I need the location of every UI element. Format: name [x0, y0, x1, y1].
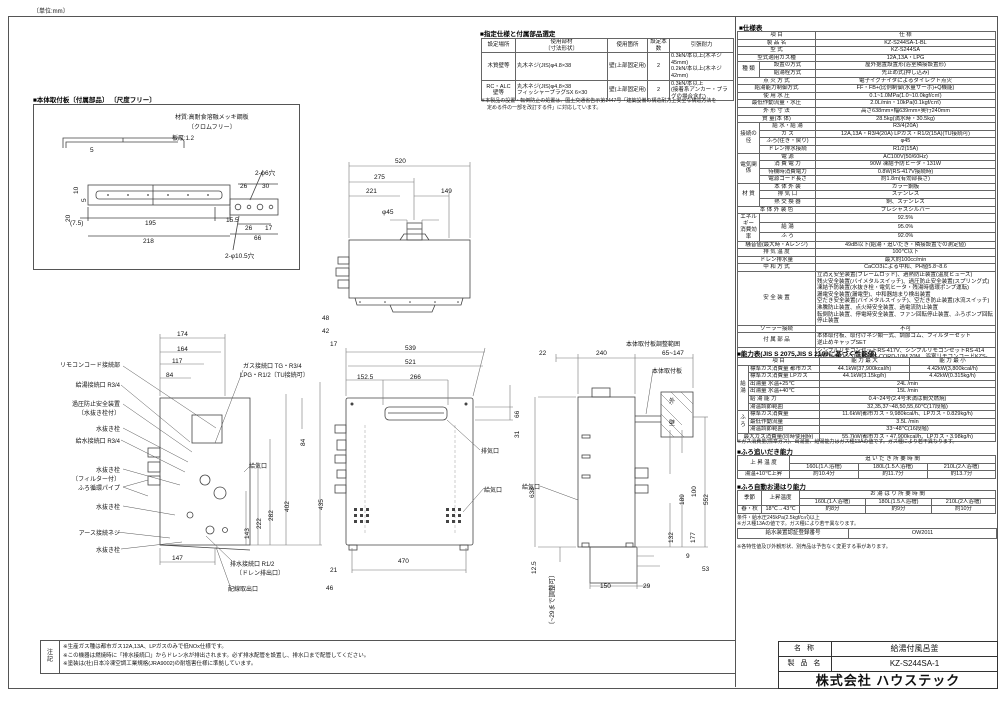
table-cell: 44.1kW(37,900kcal/h) — [820, 365, 910, 373]
dim-label: 15.5 — [226, 217, 239, 224]
table-cell: 95.0% — [816, 223, 996, 232]
table-cell: 32,35,37~48,50,55,60℃(17段階) — [820, 403, 996, 411]
table-cell: 11.6kW(都市ガス・9,980kcal/h、LPガス・0.829kg/h) — [820, 411, 996, 419]
capacity-note: ※ガス消費量(標準ガス)、出湯量、給湯能力はガス種13Aの値です。ガス種により若… — [737, 438, 957, 445]
table-cell: 設定場所 — [482, 39, 516, 53]
table-cell: 湯温+10℃上昇 — [738, 471, 790, 479]
dim-label: 149 — [441, 188, 452, 195]
table-cell: 210L(2人浴槽) — [932, 498, 996, 506]
table-cell: 丸木ネジ(JIS)φ4.8×38 — [516, 53, 608, 80]
capacity-table: 項 目能 力 最 大能 力 最 小給湯標準ガス消費量 都市ガス44.1kW(37… — [737, 357, 995, 442]
table-cell: 型 式 — [738, 47, 816, 55]
table-cell: 15L /min — [820, 388, 996, 396]
unit-note: 〔単位:mm〕 — [33, 6, 69, 15]
wall-label-outer: 外 — [669, 396, 675, 405]
dim-label: 66 — [254, 235, 261, 242]
table-cell: 湯温調節範囲 — [749, 426, 820, 434]
table-cell: ソーラー接続 — [738, 325, 816, 333]
table-cell: 12A,13A・R3/4(20A) LPガス・R1/2(15A)(TU接続可) — [816, 130, 996, 138]
table-cell: 約8分 — [800, 506, 866, 514]
dim-label: 174 — [177, 331, 188, 338]
table-cell: φ45 — [816, 138, 996, 146]
table-cell: 点 火 方 式 — [738, 77, 816, 85]
table-cell: 木質壁等 — [482, 53, 516, 80]
title-block-company: 株式会社 ハウステック — [779, 672, 997, 689]
callout-exhaust-outlet: 排気口 — [481, 446, 499, 455]
table-cell: ステンレス — [816, 191, 996, 199]
table-cell: 24L /min — [820, 380, 996, 388]
dim-label: 9 — [686, 553, 690, 560]
table-cell: 約9分 — [866, 506, 932, 514]
table-cell: 92.5% — [816, 214, 996, 223]
table-cell: お 湯 は り 所 要 時 間 — [800, 491, 996, 499]
dim-label: 30 — [262, 183, 269, 190]
callout-drain-plug-4: 水抜き栓 — [35, 545, 120, 554]
callout-hot-water-outlet: 給湯接続口 R3/4 — [35, 380, 120, 389]
table-cell: 接続の径 — [738, 123, 760, 153]
table-cell: ガ ス — [760, 130, 816, 138]
dim-label: 26 — [240, 183, 247, 190]
dim-label: 266 — [410, 374, 421, 381]
front-view-drawing — [335, 330, 535, 605]
callout-cold-water-inlet: 給水接続口 R3/4 — [35, 436, 120, 445]
table-cell: 使 用 水 圧 — [738, 92, 816, 100]
callout-air-supply-left: 給気口 — [249, 461, 267, 470]
table-cell: 外 形 寸 法 — [738, 107, 816, 115]
table-cell: 標準ガス消費量 LPガス — [749, 373, 820, 381]
autofill-note2: ※ガス種13Aの値です。ガス種により若干異なります。 — [737, 520, 859, 527]
dim-label: (7.5) — [70, 220, 83, 227]
table-cell: 電 源 — [760, 153, 816, 161]
dim-label: 132 — [668, 532, 675, 543]
hole-callout: 2-φ10.5穴 — [225, 250, 254, 260]
table-cell: 28.5kg(満水時・30.5kg) — [816, 115, 996, 123]
dim-label: 84 — [300, 439, 307, 446]
table-cell: 210L(2人浴槽) — [928, 463, 996, 471]
dim-label: 17 — [330, 341, 337, 348]
table-cell: 2 — [648, 53, 670, 80]
table-cell: 上昇温度 — [762, 491, 800, 506]
table-cell: 種 類 — [738, 62, 760, 77]
table-cell: KZ-S244SA-1-BL — [816, 39, 996, 47]
table-cell: 設定本数 — [648, 39, 670, 53]
table-cell: ドレン排水量 — [738, 256, 816, 264]
dim-label: 218 — [143, 238, 154, 245]
table-cell: 最低作動流量・水圧 — [738, 100, 816, 108]
table-cell: 使用部材 〔寸法形状〕 — [516, 39, 608, 53]
table-cell: 消 費 電 力 — [760, 161, 816, 169]
table-cell: 不可 — [816, 325, 996, 333]
callout-relief-valve-sub: 〔水抜き栓付〕 — [35, 408, 120, 417]
top-view-drawing — [330, 150, 480, 320]
callout-wiring-outlet: 配線取出口 — [228, 584, 258, 593]
table-cell: 追 い だ き 所 要 時 間 — [790, 456, 996, 464]
table-cell: 春・秋 — [738, 506, 762, 514]
dim-label: 147 — [172, 555, 183, 562]
title-block: 名 称 給湯付風呂釜 製 品 名 KZ-S244SA-1 株式会社 ハウステック — [778, 641, 998, 689]
table-cell: 12A,13A・LPG — [816, 54, 996, 62]
table-cell: 90W 凍結予防ヒータ・131W — [816, 161, 996, 169]
plate-thickness: 板厚:1.2 — [172, 133, 194, 142]
table-cell: 電子イグナイタによるダイレクト点火 — [816, 77, 996, 85]
autofill-table: 季節上昇温度お 湯 は り 所 要 時 間160L(1人浴槽)180L(1.5人… — [737, 490, 995, 514]
callout-gas-connection: ガス接続口 TG・R3/4 — [243, 361, 302, 370]
callout-mounting-plate: 本体取付板 — [652, 366, 682, 375]
table-cell: 項 目 — [738, 32, 816, 40]
dim-label: 10 — [73, 187, 80, 194]
table-cell: FF・FB+(比例制御(水量サーボ)+Q機能) — [816, 85, 996, 93]
dim-label: 435 — [318, 499, 325, 510]
table-cell: 標準ガス消費量 都市ガス — [749, 365, 820, 373]
spec-footer-note: ※各特性値及び外観形状、別売品は予告なく変更する事があります。 — [737, 543, 891, 550]
dim-label: 552 — [703, 494, 710, 505]
plate-material-line1: 材質:高耐食溶融メッキ鋼板 — [175, 112, 249, 121]
dim-label: 521 — [405, 359, 416, 366]
table-cell: 排 気 口 — [760, 191, 816, 199]
table-cell: 160L(1人浴槽) — [790, 463, 859, 471]
table-cell: 屋外据置設置形(浴室隣接設置形) — [816, 62, 996, 70]
table-cell: AC100V(50/60Hz) — [816, 153, 996, 161]
table-cell: 約10分 — [932, 506, 996, 514]
dim-label: 5 — [90, 147, 94, 154]
table-cell: 使用箇所 — [608, 39, 648, 53]
dim-label: 195 — [145, 220, 156, 227]
table-cell: 季節 — [738, 491, 762, 506]
certification-label: 給水装置認証登録番号 — [738, 529, 849, 538]
dim-label: 117 — [172, 358, 182, 365]
title-block-product-label: 製 品 名 — [779, 657, 832, 671]
table-cell: 92.0% — [816, 232, 996, 241]
dim-label: 12.5 — [531, 561, 538, 574]
dim-label: 275 — [374, 174, 385, 181]
table-cell: 電気関係 — [738, 153, 760, 183]
wall-label-wall: 壁 — [669, 418, 675, 427]
table-cell: 44.1kW(3.15kg/h) — [820, 373, 910, 381]
dim-label: 539 — [405, 345, 416, 352]
callout-drain-plug-3: 水抜き栓 — [35, 502, 120, 511]
callout-bath-circulation-pipe: ふろ循環パイプ — [35, 483, 120, 492]
table-cell: 仕 様 — [816, 32, 996, 40]
table-cell: ふろ(往き・戻り) — [760, 138, 816, 146]
dim-label: 402 — [284, 501, 291, 512]
supplied-parts-title: ■指定仕様と付属部品選定 — [480, 28, 555, 38]
dim-label: 46 — [326, 585, 333, 592]
dim-label: 22 — [539, 350, 546, 357]
dim-label: 470 — [398, 558, 409, 565]
dim-label: 152.5 — [357, 374, 373, 381]
table-cell: 本 体 外 装 色 — [738, 206, 816, 214]
dim-label: 84 — [166, 372, 173, 379]
mounting-plate-title: ■本体取付板〔付属部品〕 〔尺度フリー〕 — [33, 94, 156, 104]
table-cell: 18℃→43℃ — [762, 506, 800, 514]
table-cell: 約11.7分 — [859, 471, 928, 479]
table-cell: 最大約100cc/min — [816, 256, 996, 264]
table-cell: 180L(1.5人浴槽) — [866, 498, 932, 506]
dim-label: 520 — [395, 158, 406, 165]
dim-label: 〔~29まで調整可〕 — [546, 571, 556, 628]
right-view-drawing — [520, 330, 735, 605]
dim-label: 150 — [600, 583, 611, 590]
title-block-name: 給湯付風呂釜 — [832, 642, 997, 656]
hole-callout: 2-φ6穴 — [255, 167, 275, 177]
table-cell: 騒音値(最大時・Aレンジ) — [738, 241, 816, 249]
table-cell: 給湯栓方式 — [760, 69, 816, 77]
callout-gas-connection-sub: LPG・R1/2〔TU接続可〕 — [240, 370, 309, 379]
mounting-plate-range-label: 本体取付板調整範囲 — [626, 339, 680, 348]
table-cell: 先止め式(押し込み) — [816, 69, 996, 77]
table-cell: エネルギー 消費効率 — [738, 214, 760, 241]
table-cell: 0.4~24号(2.4号未満は間欠燃焼) — [820, 395, 996, 403]
table-cell: 本体取付板、取付けネジ類一式、調節ゴム、フィルターセット 逆止めキャップSET — [816, 333, 996, 347]
supplied-parts-note2: 定める件の一部を改訂する件」に対応しています。 — [487, 104, 601, 111]
table-cell: 給湯能力制御方式 — [738, 85, 816, 93]
table-cell: 出湯量 水温+25℃ — [749, 380, 820, 388]
table-cell: 型式適用ガス種 — [738, 54, 816, 62]
spec-table: 項 目仕 様製 品 名KZ-S244SA-1-BL型 式KZ-S244SA型式適… — [737, 31, 995, 382]
table-cell: 160L(1人浴槽) — [800, 498, 866, 506]
table-cell: 出湯量 水温+40℃ — [749, 388, 820, 396]
table-cell: 上 昇 温 度 — [738, 456, 790, 471]
table-cell: 100℃以下 — [816, 249, 996, 257]
dim-label: 26 — [245, 225, 252, 232]
callout-drain-connection-sub: 〔ドレン排出口〕 — [236, 568, 284, 577]
table-cell: 2.0L/min・10kPa(0.1kgf/c㎡) — [816, 100, 996, 108]
callout-drain-plug-2: 水抜き栓 — [35, 465, 120, 474]
dim-label: 5 — [81, 198, 88, 202]
table-cell: 給 湯 — [760, 223, 816, 232]
callout-air-supply-front: 給気口 — [484, 485, 502, 494]
table-cell: 能 力 最 大 — [820, 358, 910, 366]
dim-label: φ45 — [382, 209, 393, 216]
table-cell: 0.3kN/本以上(木ネジ45mm) 0.2kN/本以上(木ネジ42mm) — [670, 53, 734, 80]
table-cell: 壁(上部固定用) — [608, 53, 648, 80]
callout-filter: 〔フィルター付〕 — [35, 474, 120, 483]
table-cell: 4.42kW(0.315kg/h) — [910, 373, 996, 381]
table-cell: 製 品 名 — [738, 39, 816, 47]
table-cell: 0.1~1.0MPa(1.0~10.0kgf/c㎡) — [816, 92, 996, 100]
supplied-parts-table: 設定場所使用部材 〔寸法形状〕使用箇所設定本数引張耐力木質壁等丸木ネジ(JIS)… — [481, 38, 733, 101]
dim-label: 29 — [643, 583, 650, 590]
table-cell: 待機時消費電力 — [760, 168, 816, 176]
table-cell: 4.42kW(3,800kcal/h) — [910, 365, 996, 373]
callout-earth-screw: アース接続ネジ — [35, 528, 120, 537]
table-cell: 材 質 — [738, 183, 760, 206]
callout-drain-plug-1: 水抜き栓 — [35, 424, 120, 433]
dim-label: 221 — [366, 188, 377, 195]
table-cell: R3/4(20A) — [816, 123, 996, 131]
callout-remote-cord: リモコンコード接続部 — [35, 360, 120, 369]
table-cell: 安 全 装 置 — [738, 272, 816, 326]
table-cell: 質 量(本 体) — [738, 115, 816, 123]
supplied-parts-note1: ※本製品の設置・転倒防止の処置は、国土交通省告示第1447号「建築設備の構造耐力… — [481, 97, 716, 104]
certification-number: OW2011 — [849, 529, 996, 538]
table-cell: 給湯 — [738, 365, 749, 411]
dim-label: 53 — [702, 566, 709, 573]
table-cell: 給 湯 能 力 — [749, 395, 820, 403]
table-cell: 約13.7分 — [928, 471, 996, 479]
table-cell: 能 力 最 小 — [910, 358, 996, 366]
table-cell: ふ ろ — [760, 232, 816, 241]
dim-label: 143 — [244, 528, 251, 539]
table-cell: 3.5L /min — [820, 418, 996, 426]
table-cell: 引張耐力 — [670, 39, 734, 53]
table-cell: 標準ガス消費量 — [749, 411, 820, 419]
table-cell: 最低作動流量 — [749, 418, 820, 426]
table-cell: ふろ — [738, 411, 749, 434]
table-cell: 180L(1.5人浴槽) — [859, 463, 928, 471]
callout-drain-connection: 排水接続口 R1/2 — [230, 559, 274, 568]
dim-label: 17 — [265, 225, 272, 232]
table-cell: CaCO3による中和、PH値5.8~8.6 — [816, 264, 996, 272]
notes-box-lines: ※生産ガス種は都市ガス12A,13A、LPガスのみで低NOx仕様です。 ※この機… — [60, 641, 372, 673]
table-cell: 設置の方式 — [760, 62, 816, 70]
certification-bar: 給水装置認証登録番号 OW2011 — [737, 528, 997, 539]
callout-relief-valve: 過圧防止安全装置 — [35, 399, 120, 408]
dim-label: 189 — [679, 494, 686, 505]
dim-label: 48 — [322, 315, 329, 322]
table-cell: 本 体 外 装 — [760, 183, 816, 191]
dim-label: 222 — [256, 518, 263, 529]
table-cell: 熱 交 換 器 — [760, 199, 816, 207]
table-cell: KZ-S244SA — [816, 47, 996, 55]
dim-label: 100 — [691, 486, 698, 497]
table-cell: R1/2(15A) — [816, 145, 996, 153]
dim-label: 177 — [690, 532, 697, 543]
table-cell: 立消え安全装置(フレームロッド)、過熱防止装置(温度ヒューズ) 残火安全装置(バ… — [816, 272, 996, 326]
plate-material-line2: 〔クロムフリー〕 — [188, 122, 236, 131]
table-cell: 49dB以下(給湯・追いだき・隣接設置での測定値) — [816, 241, 996, 249]
table-cell: 33~48℃(16段階) — [820, 426, 996, 434]
dim-label: 42 — [322, 328, 329, 335]
table-cell: 0.8W(RS-417V接続時) — [816, 168, 996, 176]
title-block-name-label: 名 称 — [779, 642, 832, 656]
table-cell: 湯温調節範囲 — [749, 403, 820, 411]
notes-box-label: 注 記 — [41, 641, 60, 673]
table-cell: 電源コード長さ — [760, 176, 816, 184]
table-cell: 付 属 部 品 — [738, 333, 816, 347]
callout-air-supply-right: 給気口 — [522, 482, 540, 491]
table-cell — [760, 214, 816, 223]
table-cell: ドレン排水接続 — [760, 145, 816, 153]
table-cell: 高さ638mm×幅639mm×奥行240mm — [816, 107, 996, 115]
table-cell: 給 水・給 湯 — [760, 123, 816, 131]
dim-label: 164 — [177, 346, 188, 353]
dim-label: 21 — [330, 567, 337, 574]
notes-box: 注 記 ※生産ガス種は都市ガス12A,13A、LPガスのみで低NOx仕様です。 … — [40, 640, 736, 674]
dim-label: 240 — [596, 350, 607, 357]
dim-label: 65~147 — [662, 350, 684, 357]
reheat-table: 上 昇 温 度追 い だ き 所 要 時 間160L(1人浴槽)180L(1.5… — [737, 455, 995, 479]
table-cell: 項 目 — [738, 358, 820, 366]
table-cell: プレシャスシルバー — [816, 206, 996, 214]
title-block-product: KZ-S244SA-1 — [832, 657, 997, 671]
table-cell: 排 気 温 度 — [738, 249, 816, 257]
drawing-sheet: 〔単位:mm〕 ■本体取付板〔付属部品〕 〔尺度フリー〕 — [0, 0, 1000, 707]
table-cell: カラー鋼板 — [816, 183, 996, 191]
table-cell: 約1.8m(有効部長さ) — [816, 176, 996, 184]
section-divider — [735, 16, 736, 687]
table-cell: 銅、ステンレス — [816, 199, 996, 207]
table-cell: 約10.4分 — [790, 471, 859, 479]
table-cell: 中 和 方 式 — [738, 264, 816, 272]
dim-label: 282 — [268, 510, 275, 521]
